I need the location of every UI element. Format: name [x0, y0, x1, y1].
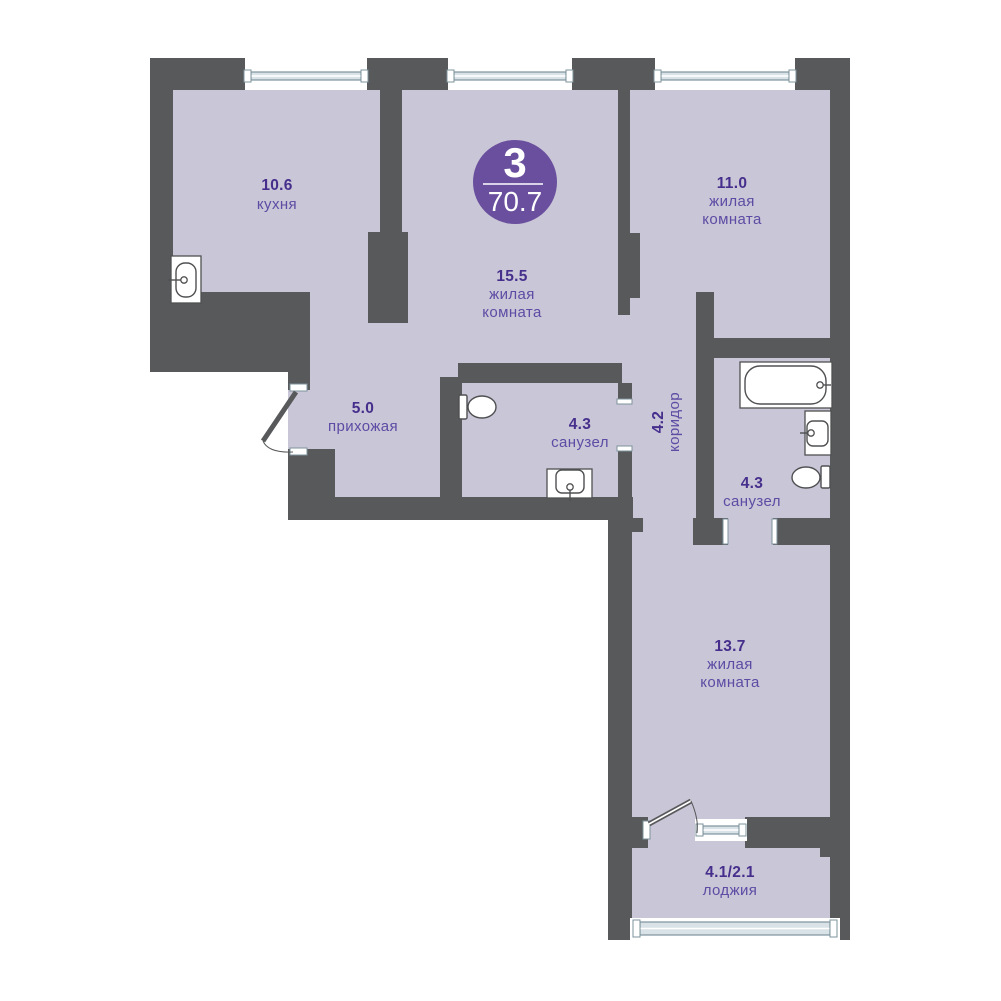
room-name: комната — [700, 674, 760, 691]
tap-handle — [181, 277, 187, 283]
floorplan-svg: 370.710.6кухня15.5жилаякомната11.0жилаяк… — [0, 0, 1001, 1001]
room-name: жилая — [707, 656, 753, 673]
door-jamb-cap — [290, 448, 307, 455]
window-end-cap — [789, 70, 796, 82]
window-end-cap — [566, 70, 573, 82]
wall-segment — [618, 448, 632, 497]
window — [447, 58, 573, 90]
window — [244, 58, 368, 90]
wall-segment — [773, 518, 830, 545]
wall-segment — [632, 518, 643, 532]
wall-segment — [150, 90, 173, 292]
kitchen-sink — [168, 256, 201, 303]
room-area: 5.0 — [352, 400, 374, 417]
window — [695, 819, 747, 841]
window-end-cap — [361, 70, 368, 82]
window-end-cap — [654, 70, 661, 82]
wall-segment — [696, 292, 714, 545]
room-label-loggia: 4.1/2.1лоджия — [703, 864, 758, 899]
toilet-tank — [821, 466, 830, 488]
wall-segment — [608, 513, 632, 940]
bath-basin — [745, 366, 826, 404]
room-name: прихожая — [328, 418, 398, 435]
badge-rooms-count: 3 — [503, 139, 526, 186]
room-area: 4.3 — [741, 475, 764, 492]
room-area: 4.1/2.1 — [705, 864, 755, 881]
wall-segment — [368, 232, 408, 323]
tap-handle — [808, 430, 814, 436]
door-jamb-cap — [617, 399, 632, 404]
room-area: 4.3 — [569, 416, 592, 433]
window-end-cap — [739, 824, 746, 836]
window-end-cap — [447, 70, 454, 82]
room-name: комната — [482, 304, 542, 321]
room-name: жилая — [489, 286, 535, 303]
door-jamb-cap — [290, 384, 307, 391]
room-name: комната — [702, 211, 762, 228]
wall-segment — [630, 233, 640, 298]
toilet-1 — [459, 395, 496, 419]
floorplan-page: 370.710.6кухня15.5жилаякомната11.0жилаяк… — [0, 0, 1001, 1001]
wall-segment — [458, 363, 622, 383]
window-end-cap — [244, 70, 251, 82]
room-name: кухня — [257, 196, 297, 213]
wall-segment — [618, 88, 630, 315]
wall-segment — [572, 58, 655, 90]
badge-total-area: 70.7 — [488, 186, 543, 217]
toilet-bowl — [468, 396, 496, 418]
door-jamb-cap — [617, 446, 632, 451]
window — [654, 58, 796, 90]
bathtub — [740, 362, 832, 408]
room-area: 10.6 — [261, 177, 292, 194]
wall-segment — [288, 497, 633, 520]
toilet-tank — [459, 395, 467, 419]
room-area: 13.7 — [714, 638, 745, 655]
window — [630, 918, 840, 940]
washbasin-1 — [547, 469, 592, 501]
room-name: жилая — [709, 193, 755, 210]
window-end-cap — [830, 920, 837, 937]
room-name: санузел — [723, 493, 781, 510]
room-name: санузел — [551, 434, 609, 451]
washbasin-2 — [800, 411, 831, 455]
door-jamb-cap — [723, 519, 728, 544]
room-name: лоджия — [703, 882, 758, 899]
wall-segment — [830, 58, 850, 940]
door-jamb-cap — [772, 519, 777, 544]
wall-segment — [150, 58, 245, 90]
wall-segment — [367, 58, 448, 90]
toilet-2 — [792, 466, 830, 488]
room-area: 15.5 — [496, 268, 527, 285]
wall-segment — [440, 377, 462, 497]
room-area: 11.0 — [717, 175, 748, 192]
room-area: 4.2 — [650, 411, 667, 433]
room-name: коридор — [666, 392, 683, 452]
tap-handle — [567, 484, 573, 490]
tap-handle — [817, 382, 823, 388]
wall-segment — [745, 817, 830, 848]
wall-segment — [380, 90, 402, 232]
window-end-cap — [633, 920, 640, 937]
wall-segment — [820, 843, 830, 857]
toilet-bowl — [792, 467, 820, 488]
wall-segment — [713, 338, 850, 358]
wall-segment — [608, 817, 648, 848]
wall-segment — [150, 292, 310, 372]
floorplan-canvas: 370.710.6кухня15.5жилаякомната11.0жилаяк… — [0, 0, 1001, 1001]
